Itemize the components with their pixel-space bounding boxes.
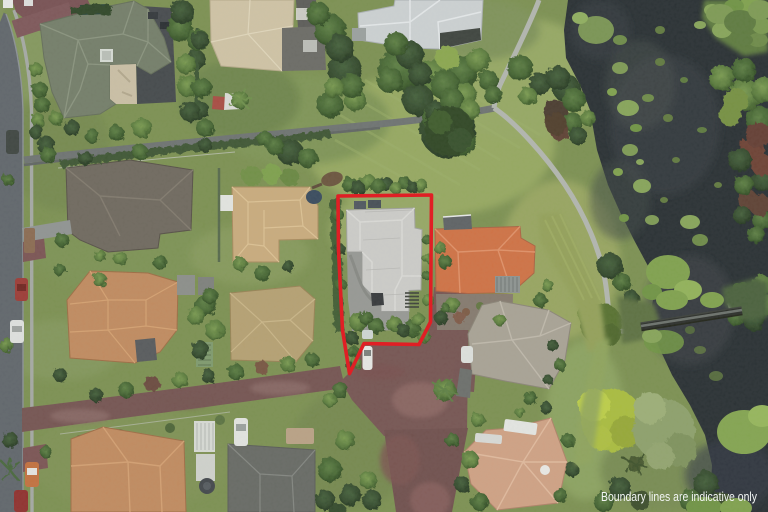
svg-text:Boundary lines are indicative: Boundary lines are indicative only	[601, 489, 757, 504]
